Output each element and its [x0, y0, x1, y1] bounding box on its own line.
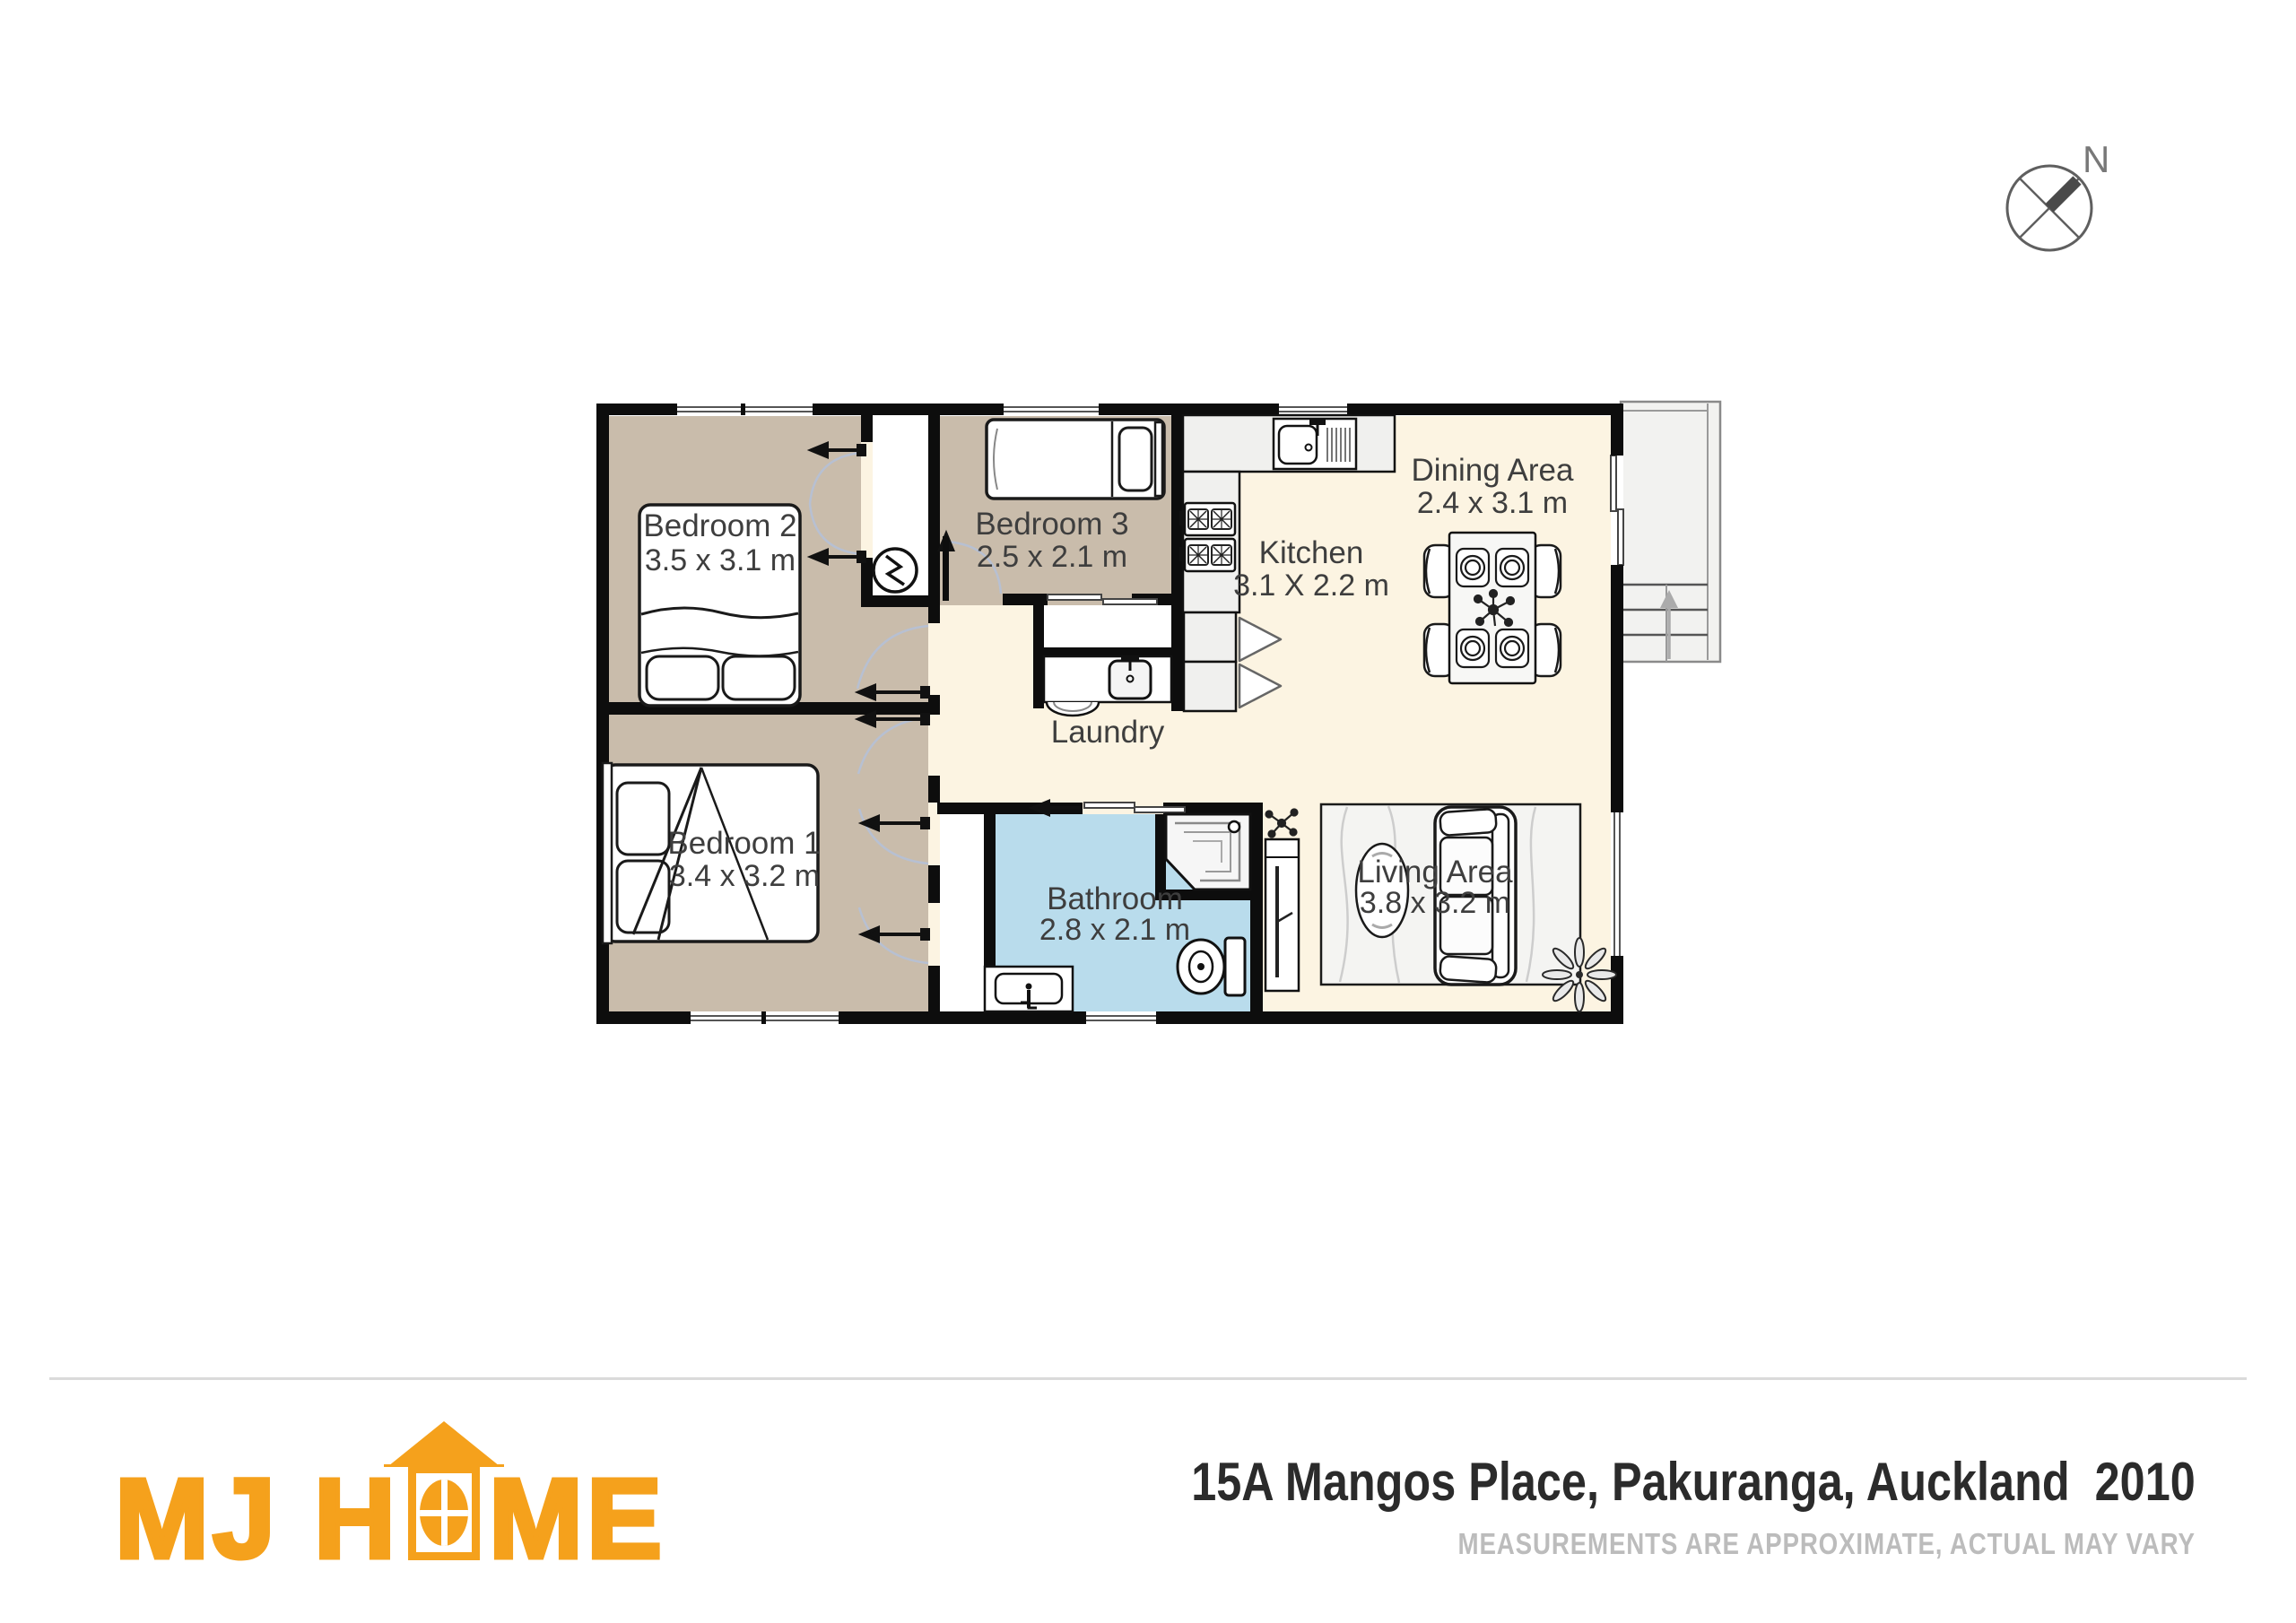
bedroom3-door-leaf: [943, 536, 949, 601]
bedroom2-dims: 3.5 x 3.1 m: [645, 543, 796, 577]
living-window: [1611, 807, 1623, 961]
bathroom-vanity: [985, 967, 1073, 1011]
bedroom1-label: Bedroom 1: [667, 826, 821, 861]
kitchen-sink: [1274, 419, 1356, 469]
dining-label: Dining Area: [1412, 453, 1574, 488]
floorplan-page: N: [0, 0, 2296, 1623]
kitchen-label: Kitchen: [1259, 535, 1364, 570]
property-address: 15A Mangos Place, Pakuranga, Auckland 20…: [1191, 1451, 2196, 1513]
bathroom-window: [1081, 1011, 1161, 1024]
floor-plant-icon: [1543, 938, 1616, 1011]
hot-water-cylinder-icon: [874, 549, 917, 592]
kitchen-dims: 3.1 X 2.2 m: [1233, 568, 1389, 603]
bedroom3-window: [997, 404, 1105, 415]
compass-north-label: N: [2083, 138, 2109, 180]
logo-roof-icon: [388, 1421, 500, 1466]
logo-window-icon: [420, 1480, 468, 1546]
footer-divider: [49, 1377, 2247, 1380]
bedroom2-label: Bedroom 2: [643, 508, 796, 543]
living-label: Living Area: [1357, 855, 1513, 890]
bedroom1-window: [684, 1011, 845, 1024]
bathroom-dims: 2.8 x 2.1 m: [1039, 913, 1190, 947]
bedroom3-label: Bedroom 3: [975, 507, 1128, 542]
laundry-label: Laundry: [1051, 715, 1165, 750]
dining-dims: 2.4 x 3.1 m: [1417, 486, 1568, 520]
address-block: 15A Mangos Place, Pakuranga, Auckland 20…: [1000, 1451, 2196, 1561]
logo-text-right: ME: [489, 1478, 665, 1560]
kitchen-window: [1274, 404, 1352, 415]
logo-text-left: MJ H: [115, 1478, 399, 1560]
measurements-disclaimer: MEASUREMENTS ARE APPROXIMATE, ACTUAL MAY…: [1191, 1527, 2196, 1561]
brand-logo: MJ H ME: [115, 1471, 665, 1560]
logo-house-icon: [408, 1465, 480, 1560]
logo-eave-left: [384, 1464, 409, 1467]
bedroom1-wardrobe-floor: [940, 814, 984, 1011]
bathroom-label: Bathroom: [1047, 881, 1183, 916]
logo-eave-right: [479, 1464, 504, 1467]
bedroom3-dims: 2.5 x 2.1 m: [977, 540, 1127, 574]
bedroom1-dims: 3.4 x 3.2 m: [669, 859, 820, 893]
deck: [1621, 402, 1720, 662]
living-dims: 3.8 x 3.2 m: [1360, 886, 1510, 920]
dining-sliding-door: [1611, 450, 1623, 570]
bedroom3-bed: [987, 420, 1164, 499]
compass-icon: N: [2007, 138, 2109, 250]
bedroom2-window: [671, 404, 819, 415]
